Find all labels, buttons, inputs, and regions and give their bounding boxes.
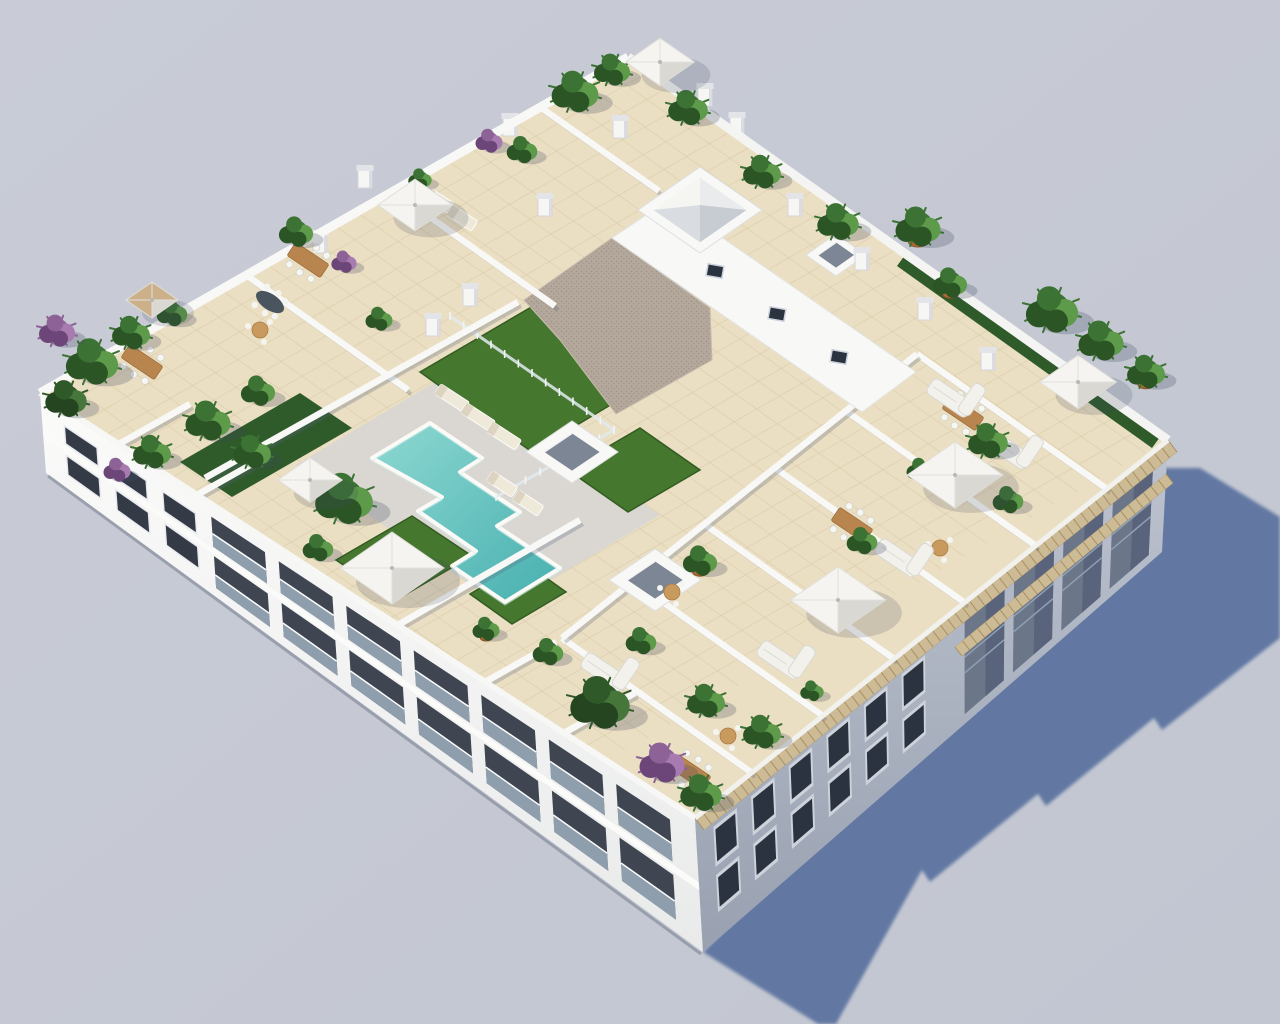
foliage (253, 391, 268, 406)
foliage (607, 70, 623, 86)
foliage (757, 172, 774, 189)
round-table (720, 728, 736, 744)
foliage (126, 333, 143, 350)
foliage (602, 54, 619, 71)
foliage (701, 701, 718, 718)
foliage (314, 548, 328, 562)
parasol-pole (836, 598, 840, 602)
foliage (940, 267, 956, 283)
chimney-cap (425, 313, 442, 319)
foliage (52, 331, 68, 347)
chimney-cap (612, 115, 629, 121)
chimney-cap (462, 283, 479, 289)
foliage (751, 715, 769, 733)
foliage (481, 129, 494, 142)
chair (657, 585, 663, 591)
foliage (649, 743, 670, 764)
foliage (120, 316, 138, 334)
foliage (309, 534, 323, 548)
foliage (47, 315, 64, 332)
foliage (478, 617, 491, 630)
chimney (425, 313, 442, 336)
chair (729, 745, 735, 751)
chimney (612, 115, 629, 138)
foliage (60, 399, 78, 417)
round-table (252, 322, 268, 338)
foliage (905, 207, 926, 228)
foliage (1045, 309, 1068, 332)
foliage (341, 262, 352, 273)
foliage (569, 91, 590, 112)
foliage (757, 732, 774, 749)
foliage (375, 319, 387, 331)
foliage (637, 641, 651, 655)
foliage (241, 435, 259, 453)
foliage (1141, 372, 1158, 389)
chimney (787, 193, 804, 216)
foliage (751, 155, 769, 173)
foliage (485, 141, 497, 153)
chimney (357, 165, 374, 188)
foliage (513, 136, 527, 150)
foliage (482, 629, 494, 641)
foliage (592, 702, 618, 728)
parasol-pole (150, 298, 154, 302)
architectural-render-canvas (0, 0, 1280, 1024)
foliage (413, 168, 424, 179)
foliage (286, 216, 302, 232)
foliage (945, 283, 960, 298)
chimney-cap (537, 193, 554, 199)
foliage (983, 441, 1001, 459)
foliage (539, 638, 553, 652)
foliage (371, 307, 384, 320)
foliage (202, 421, 222, 441)
core-window (830, 350, 848, 365)
foliage (195, 401, 216, 422)
chair (679, 581, 685, 587)
chimney-cap (917, 297, 934, 303)
parasol-pole (308, 478, 312, 482)
foliage (912, 227, 932, 247)
foliage (141, 435, 159, 453)
foliage (805, 680, 816, 691)
chimney-cap (787, 193, 804, 199)
chair (713, 729, 719, 735)
foliage (54, 380, 73, 399)
foliage (858, 541, 872, 555)
core-window (768, 307, 786, 322)
chimney (537, 193, 554, 216)
chimney-cap (980, 347, 997, 353)
chimney (854, 247, 871, 270)
foliage (113, 470, 125, 482)
foliage (1095, 341, 1115, 361)
foliage (977, 423, 995, 441)
chimney (462, 283, 479, 306)
chair (941, 557, 947, 563)
foliage (248, 375, 264, 391)
round-table (932, 540, 948, 556)
foliage (561, 71, 583, 93)
parasol-pole (1076, 380, 1080, 384)
round-table (664, 584, 680, 600)
foliage (695, 793, 713, 811)
foliage (291, 232, 306, 247)
foliage (583, 676, 611, 704)
foliage (337, 251, 349, 263)
foliage (689, 774, 708, 793)
chair (267, 319, 273, 325)
foliage (656, 763, 676, 783)
foliage (832, 222, 850, 240)
chair (261, 339, 267, 345)
foliage (683, 108, 701, 126)
aerial-render-svg (0, 0, 1280, 1024)
chimney-cap (357, 165, 374, 171)
foliage (632, 627, 646, 641)
parasol-pole (413, 203, 417, 207)
parasol-pole (953, 473, 957, 477)
chair (245, 323, 251, 329)
foliage (695, 684, 713, 702)
foliage (147, 452, 164, 469)
parasol-pole (390, 566, 394, 570)
chimney (917, 297, 934, 320)
chimney-cap (854, 247, 871, 253)
foliage (109, 458, 122, 471)
foliage (826, 203, 845, 222)
foliage (518, 150, 532, 164)
chair (673, 601, 679, 607)
foliage (809, 691, 819, 701)
foliage (695, 561, 710, 576)
foliage (544, 652, 558, 666)
parasol-pole (658, 60, 662, 64)
chair (735, 725, 741, 731)
foliage (1037, 286, 1061, 310)
chair (947, 537, 953, 543)
chimney-cap (729, 112, 746, 118)
foliage (85, 361, 108, 384)
chimney (980, 347, 997, 370)
foliage (1088, 321, 1109, 342)
foliage (690, 545, 706, 561)
foliage (247, 452, 264, 469)
core-window (706, 264, 724, 279)
foliage (1135, 355, 1153, 373)
foliage (853, 527, 867, 541)
